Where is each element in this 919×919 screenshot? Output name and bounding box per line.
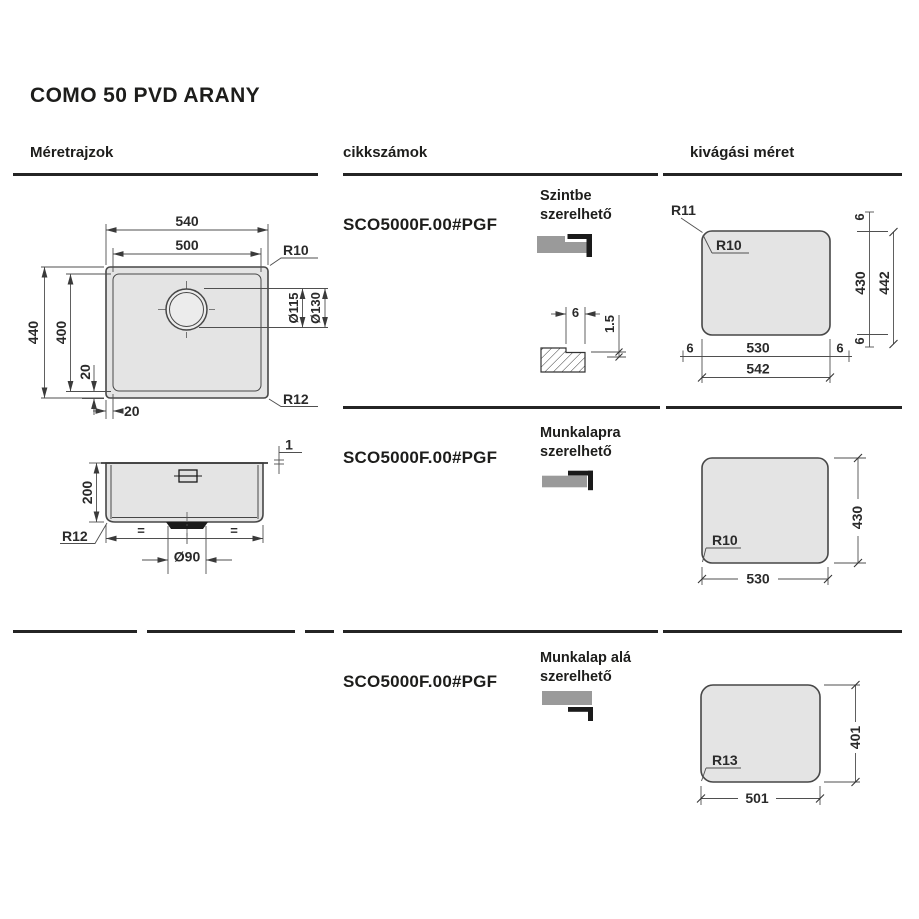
dimension-drawings-svg: 540 500 R10 Ø115 Ø130 440 400	[0, 180, 340, 640]
sku-row1: SCO5000F.00#PGF	[343, 215, 497, 235]
dim-equal-left: =	[137, 523, 145, 538]
dim-notch-width: 6	[572, 305, 579, 320]
column-header-drawings: Méretrajzok	[30, 144, 113, 161]
cutout-flush: R11 R10 6 430 6 442 6 530	[671, 202, 898, 383]
cutout-on-worktop: R10 430 530	[698, 454, 866, 587]
dim-outer-width: 540	[175, 213, 199, 229]
sink-plan-view: 540 500 R10 Ø115 Ø130 440 400	[25, 213, 328, 419]
dim-cutout1-top6: 6	[852, 213, 867, 220]
dim-cutout1-r-inner: R10	[716, 237, 742, 253]
sink-side-view: 1 200 R12 = = Ø90	[60, 437, 302, 575]
flush-mount-icon	[537, 234, 592, 257]
tap-hole-outer	[166, 289, 207, 330]
dim-cutout3-height: 401	[847, 726, 863, 750]
header-rule-right	[663, 173, 902, 176]
dim-cutout2-height: 430	[849, 506, 865, 530]
under-worktop-mount-icon	[542, 691, 593, 721]
dim-bowl-depth: 200	[79, 481, 95, 505]
dim-cutout1-bot6: 6	[852, 337, 867, 344]
column-header-cutout: kivágási méret	[690, 144, 794, 161]
dim-radius-top-right: R10	[283, 242, 309, 258]
dim-cutout3-radius: R13	[712, 752, 738, 768]
on-worktop-mount-icon	[542, 471, 593, 491]
dim-rim-thickness: 1	[285, 437, 293, 453]
dim-cutout1-height-outer: 442	[876, 271, 892, 295]
dim-cutout1-height: 430	[852, 271, 868, 295]
dim-outer-height: 440	[25, 321, 41, 345]
sink-outer-outline	[106, 267, 268, 398]
header-rule-middle	[343, 173, 658, 176]
mounting-icons-svg: 6 1.5	[518, 180, 660, 740]
sku-row2: SCO5000F.00#PGF	[343, 448, 497, 468]
dim-equal-right: =	[230, 523, 238, 538]
column-header-skus: cikkszámok	[343, 144, 427, 161]
header-rule-left	[13, 173, 318, 176]
dim-radius-bottom-right: R12	[283, 391, 309, 407]
dim-rim-offset-horizontal: 20	[124, 403, 140, 419]
worktop-section	[541, 348, 585, 372]
dim-inner-height: 400	[53, 321, 69, 345]
dim-cutout1-width: 530	[746, 340, 770, 356]
dim-cutout2-width: 530	[746, 571, 770, 587]
datasheet-page: COMO 50 PVD ARANY Méretrajzok cikkszámok…	[0, 0, 919, 919]
dim-rim-offset-vertical: 20	[77, 364, 93, 380]
dim-notch-depth: 1.5	[602, 315, 617, 333]
dim-cutout2-radius: R10	[712, 532, 738, 548]
dim-cutout1-left6: 6	[686, 341, 693, 356]
dim-tap-hole-outer: Ø130	[308, 292, 323, 324]
cutout-under-worktop: R13 401 501	[697, 681, 863, 806]
cutout-drawings-svg: R11 R10 6 430 6 442 6 530	[655, 180, 919, 840]
dim-cutout1-r-outer: R11	[671, 202, 696, 218]
dim-cutout1-width-outer: 542	[746, 361, 770, 377]
dim-drain-diameter: Ø90	[174, 549, 201, 565]
dim-tap-hole-inner: Ø115	[286, 292, 301, 323]
flush-mount-section-detail: 6 1.5	[541, 305, 626, 372]
dim-cutout3-width: 501	[745, 790, 769, 806]
dim-inner-width: 500	[175, 237, 199, 253]
dim-cutout1-right6: 6	[836, 341, 843, 356]
page-title: COMO 50 PVD ARANY	[30, 84, 260, 108]
sku-row3: SCO5000F.00#PGF	[343, 672, 497, 692]
dim-radius-bottom: R12	[62, 528, 88, 544]
